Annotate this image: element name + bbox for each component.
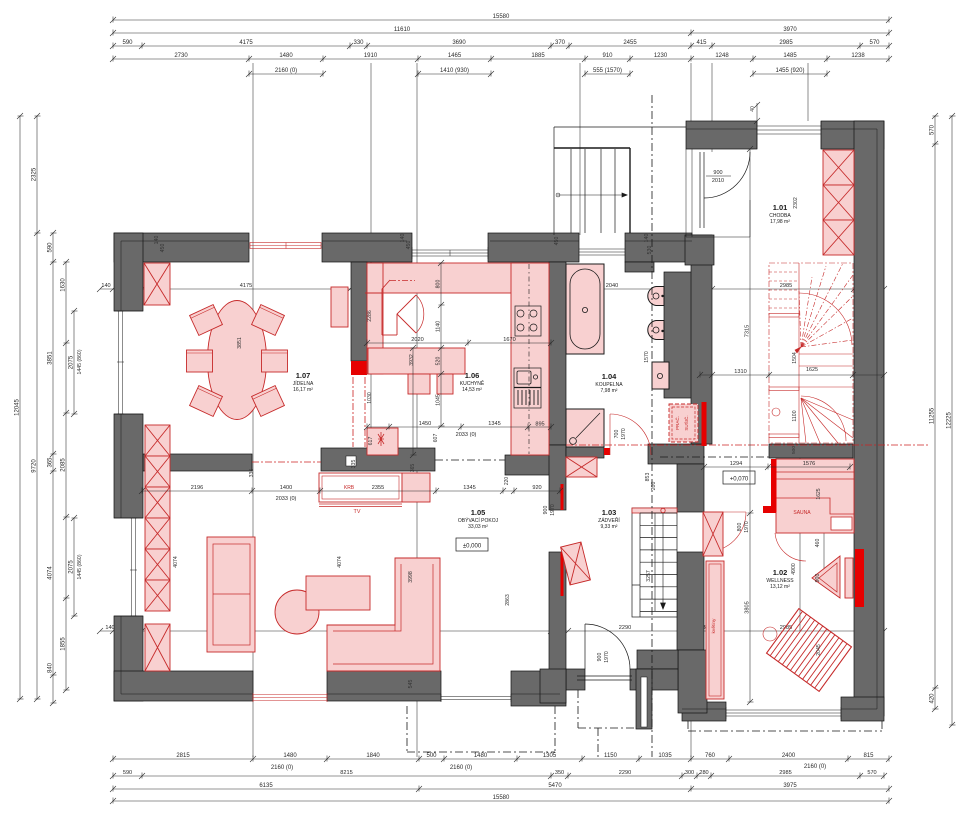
svg-text:2863: 2863 xyxy=(505,594,511,606)
svg-text:3257: 3257 xyxy=(646,570,652,582)
svg-text:530: 530 xyxy=(647,246,653,255)
svg-text:1.02: 1.02 xyxy=(773,568,788,577)
svg-text:3690: 3690 xyxy=(452,40,466,46)
svg-text:500: 500 xyxy=(791,446,797,454)
svg-text:2160 (0): 2160 (0) xyxy=(271,765,293,771)
svg-text:1630: 1630 xyxy=(61,278,67,292)
svg-text:1.03: 1.03 xyxy=(602,508,617,517)
svg-text:853: 853 xyxy=(645,473,651,482)
svg-text:1345: 1345 xyxy=(463,485,475,491)
svg-text:140: 140 xyxy=(154,236,160,245)
svg-text:OBÝVACÍ POKOJ: OBÝVACÍ POKOJ xyxy=(458,517,499,524)
svg-text:3851: 3851 xyxy=(48,351,54,365)
svg-text:1.01: 1.01 xyxy=(773,203,788,212)
svg-text:140: 140 xyxy=(105,625,114,631)
svg-text:800: 800 xyxy=(737,523,743,532)
svg-text:9720: 9720 xyxy=(32,459,38,473)
svg-text:2290: 2290 xyxy=(619,770,631,776)
svg-text:1885: 1885 xyxy=(531,53,545,59)
svg-text:590: 590 xyxy=(48,242,54,253)
svg-text:12225: 12225 xyxy=(947,411,953,428)
svg-text:15580: 15580 xyxy=(493,14,510,20)
svg-text:12045: 12045 xyxy=(15,398,21,415)
svg-text:415: 415 xyxy=(696,40,707,46)
svg-text:1400: 1400 xyxy=(280,485,292,491)
svg-text:1305: 1305 xyxy=(543,753,557,759)
svg-text:335: 335 xyxy=(351,460,357,469)
svg-text:280: 280 xyxy=(699,770,708,776)
svg-text:KRB: KRB xyxy=(344,485,355,491)
svg-text:200: 200 xyxy=(651,482,657,491)
svg-text:JÍDELNA: JÍDELNA xyxy=(293,380,314,387)
svg-text:1455 (920): 1455 (920) xyxy=(775,68,804,74)
svg-text:520: 520 xyxy=(436,357,442,366)
svg-text:3851: 3851 xyxy=(237,337,243,349)
svg-text:4175: 4175 xyxy=(240,283,252,289)
svg-text:1.05: 1.05 xyxy=(471,508,486,517)
svg-text:900: 900 xyxy=(815,574,821,583)
svg-text:815: 815 xyxy=(863,753,874,759)
svg-text:1150: 1150 xyxy=(604,753,618,759)
svg-text:1450: 1450 xyxy=(419,421,431,427)
svg-text:16,17 m²: 16,17 m² xyxy=(293,387,313,393)
svg-text:920: 920 xyxy=(532,485,541,491)
svg-text:2033 (0): 2033 (0) xyxy=(276,496,297,502)
svg-text:1410 (930): 1410 (930) xyxy=(440,68,469,74)
svg-text:1910: 1910 xyxy=(364,53,378,59)
svg-text:1035: 1035 xyxy=(658,753,672,759)
svg-text:5470: 5470 xyxy=(548,783,562,789)
svg-text:+0,070: +0,070 xyxy=(730,477,749,483)
svg-text:500: 500 xyxy=(426,753,437,759)
svg-text:1445 (860): 1445 (860) xyxy=(77,349,83,374)
svg-text:590: 590 xyxy=(122,40,133,46)
svg-text:370: 370 xyxy=(555,40,566,46)
svg-text:2730: 2730 xyxy=(174,53,188,59)
svg-text:1970: 1970 xyxy=(604,651,610,663)
svg-text:1.07: 1.07 xyxy=(296,371,311,380)
svg-text:900: 900 xyxy=(543,506,549,515)
svg-text:800: 800 xyxy=(436,280,442,289)
svg-text:2160 (0): 2160 (0) xyxy=(804,764,826,770)
svg-text:7,98 m²: 7,98 m² xyxy=(601,388,618,394)
svg-text:SAUNA: SAUNA xyxy=(793,510,811,516)
svg-text:4900: 4900 xyxy=(791,563,797,575)
svg-text:1625: 1625 xyxy=(806,367,818,373)
svg-text:1045: 1045 xyxy=(436,394,442,406)
svg-text:3805: 3805 xyxy=(745,601,751,613)
svg-text:555 (1570): 555 (1570) xyxy=(593,68,622,74)
svg-text:1480: 1480 xyxy=(279,53,293,59)
svg-text:590: 590 xyxy=(123,770,132,776)
svg-text:1970: 1970 xyxy=(621,428,627,440)
svg-text:květiny: květiny xyxy=(711,618,717,634)
svg-text:607: 607 xyxy=(433,434,439,443)
svg-text:3970: 3970 xyxy=(783,27,797,33)
svg-text:450: 450 xyxy=(406,241,412,250)
svg-text:1840: 1840 xyxy=(366,753,380,759)
svg-text:2033 (0): 2033 (0) xyxy=(456,432,477,438)
svg-text:2045: 2045 xyxy=(816,644,822,656)
svg-text:2455: 2455 xyxy=(623,40,637,46)
svg-text:2196: 2196 xyxy=(191,485,203,491)
svg-text:33,03 m²: 33,03 m² xyxy=(468,524,488,530)
svg-text:7315: 7315 xyxy=(745,325,751,337)
svg-text:1294: 1294 xyxy=(730,461,742,467)
svg-text:15580: 15580 xyxy=(493,795,510,801)
svg-text:420: 420 xyxy=(930,693,936,704)
svg-text:2355: 2355 xyxy=(372,485,384,491)
svg-text:1485: 1485 xyxy=(783,53,797,59)
svg-text:1970: 1970 xyxy=(744,521,750,533)
svg-text:17,98 m²: 17,98 m² xyxy=(770,219,790,225)
svg-text:570: 570 xyxy=(867,770,876,776)
svg-text:1248: 1248 xyxy=(715,53,729,59)
svg-text:4074: 4074 xyxy=(173,556,179,568)
svg-text:11255: 11255 xyxy=(930,407,936,424)
svg-text:6135: 6135 xyxy=(259,783,273,789)
svg-text:2160 (0): 2160 (0) xyxy=(450,765,472,771)
svg-text:4175: 4175 xyxy=(239,40,253,46)
svg-text:SUŠIČ.: SUŠIČ. xyxy=(683,415,689,430)
svg-text:1238: 1238 xyxy=(851,53,865,59)
svg-text:350: 350 xyxy=(555,770,564,776)
svg-text:1030: 1030 xyxy=(367,392,373,404)
svg-text:8215: 8215 xyxy=(340,770,352,776)
svg-text:11610: 11610 xyxy=(394,27,411,33)
svg-text:14,53 m²: 14,53 m² xyxy=(462,387,482,393)
svg-text:1465: 1465 xyxy=(448,53,462,59)
svg-text:330: 330 xyxy=(353,40,364,46)
svg-text:PRAČ.: PRAČ. xyxy=(674,416,680,430)
svg-text:2985: 2985 xyxy=(780,283,792,289)
svg-text:140: 140 xyxy=(400,234,406,243)
svg-text:1310: 1310 xyxy=(734,369,746,375)
svg-text:140: 140 xyxy=(644,234,650,243)
svg-text:2020: 2020 xyxy=(411,337,423,343)
svg-text:2302: 2302 xyxy=(793,197,799,209)
svg-text:1140: 1140 xyxy=(436,321,442,332)
svg-text:2040: 2040 xyxy=(606,283,618,289)
svg-text:2985: 2985 xyxy=(779,40,793,46)
svg-text:ZÁDVEŘÍ: ZÁDVEŘÍ xyxy=(598,516,620,524)
svg-text:1570: 1570 xyxy=(644,351,650,363)
svg-text:2290: 2290 xyxy=(619,625,631,631)
svg-text:450: 450 xyxy=(160,244,166,253)
svg-text:1100: 1100 xyxy=(792,410,798,421)
svg-text:2325: 2325 xyxy=(32,167,38,181)
svg-text:2010: 2010 xyxy=(712,178,724,184)
svg-text:9,33 m²: 9,33 m² xyxy=(601,524,618,530)
svg-text:2160 (0): 2160 (0) xyxy=(275,68,297,74)
svg-text:895: 895 xyxy=(535,422,544,428)
svg-text:1480: 1480 xyxy=(283,753,297,759)
svg-text:900: 900 xyxy=(597,653,603,662)
svg-text:335: 335 xyxy=(249,469,255,478)
svg-text:140: 140 xyxy=(101,283,110,289)
svg-text:700: 700 xyxy=(614,430,620,439)
svg-text:365: 365 xyxy=(48,457,54,468)
svg-text:365: 365 xyxy=(410,464,416,473)
svg-text:1670: 1670 xyxy=(503,337,515,343)
svg-text:1855: 1855 xyxy=(61,637,67,651)
svg-text:617: 617 xyxy=(368,437,374,446)
svg-text:450: 450 xyxy=(554,237,560,246)
svg-text:1970: 1970 xyxy=(550,504,556,516)
svg-text:760: 760 xyxy=(705,753,716,759)
svg-text:1625: 1625 xyxy=(816,488,822,499)
svg-text:300: 300 xyxy=(685,770,694,776)
svg-text:2075: 2075 xyxy=(69,355,75,369)
svg-text:570: 570 xyxy=(930,124,936,135)
svg-text:900: 900 xyxy=(713,170,722,176)
svg-text:1445 (860): 1445 (860) xyxy=(77,554,83,579)
svg-text:4074: 4074 xyxy=(48,566,54,580)
svg-text:1230: 1230 xyxy=(654,53,668,59)
svg-text:910: 910 xyxy=(602,53,613,59)
svg-text:2815: 2815 xyxy=(176,753,190,759)
svg-text:2075: 2075 xyxy=(69,560,75,574)
svg-text:4074: 4074 xyxy=(337,556,343,568)
svg-text:±0,000: ±0,000 xyxy=(463,544,482,550)
svg-text:1576: 1576 xyxy=(803,461,815,467)
svg-text:3998: 3998 xyxy=(408,571,414,583)
svg-text:1345: 1345 xyxy=(488,421,500,427)
svg-text:1.06: 1.06 xyxy=(465,371,480,380)
svg-text:840: 840 xyxy=(48,662,54,673)
svg-text:570: 570 xyxy=(869,40,880,46)
svg-text:2286: 2286 xyxy=(367,310,373,322)
svg-text:3975: 3975 xyxy=(783,783,797,789)
svg-text:2400: 2400 xyxy=(782,753,796,759)
svg-text:2985: 2985 xyxy=(779,770,791,776)
svg-text:1480: 1480 xyxy=(474,753,488,759)
svg-text:1.04: 1.04 xyxy=(602,372,617,381)
svg-text:2085: 2085 xyxy=(61,458,67,472)
svg-text:220: 220 xyxy=(504,477,510,486)
svg-text:460: 460 xyxy=(815,539,821,548)
svg-text:TV: TV xyxy=(354,509,361,515)
svg-text:3932: 3932 xyxy=(409,354,415,366)
svg-text:KUCHYNĚ: KUCHYNĚ xyxy=(460,379,485,387)
svg-text:13,12 m²: 13,12 m² xyxy=(770,584,790,590)
svg-text:545: 545 xyxy=(408,680,414,689)
svg-text:1504: 1504 xyxy=(792,352,798,364)
